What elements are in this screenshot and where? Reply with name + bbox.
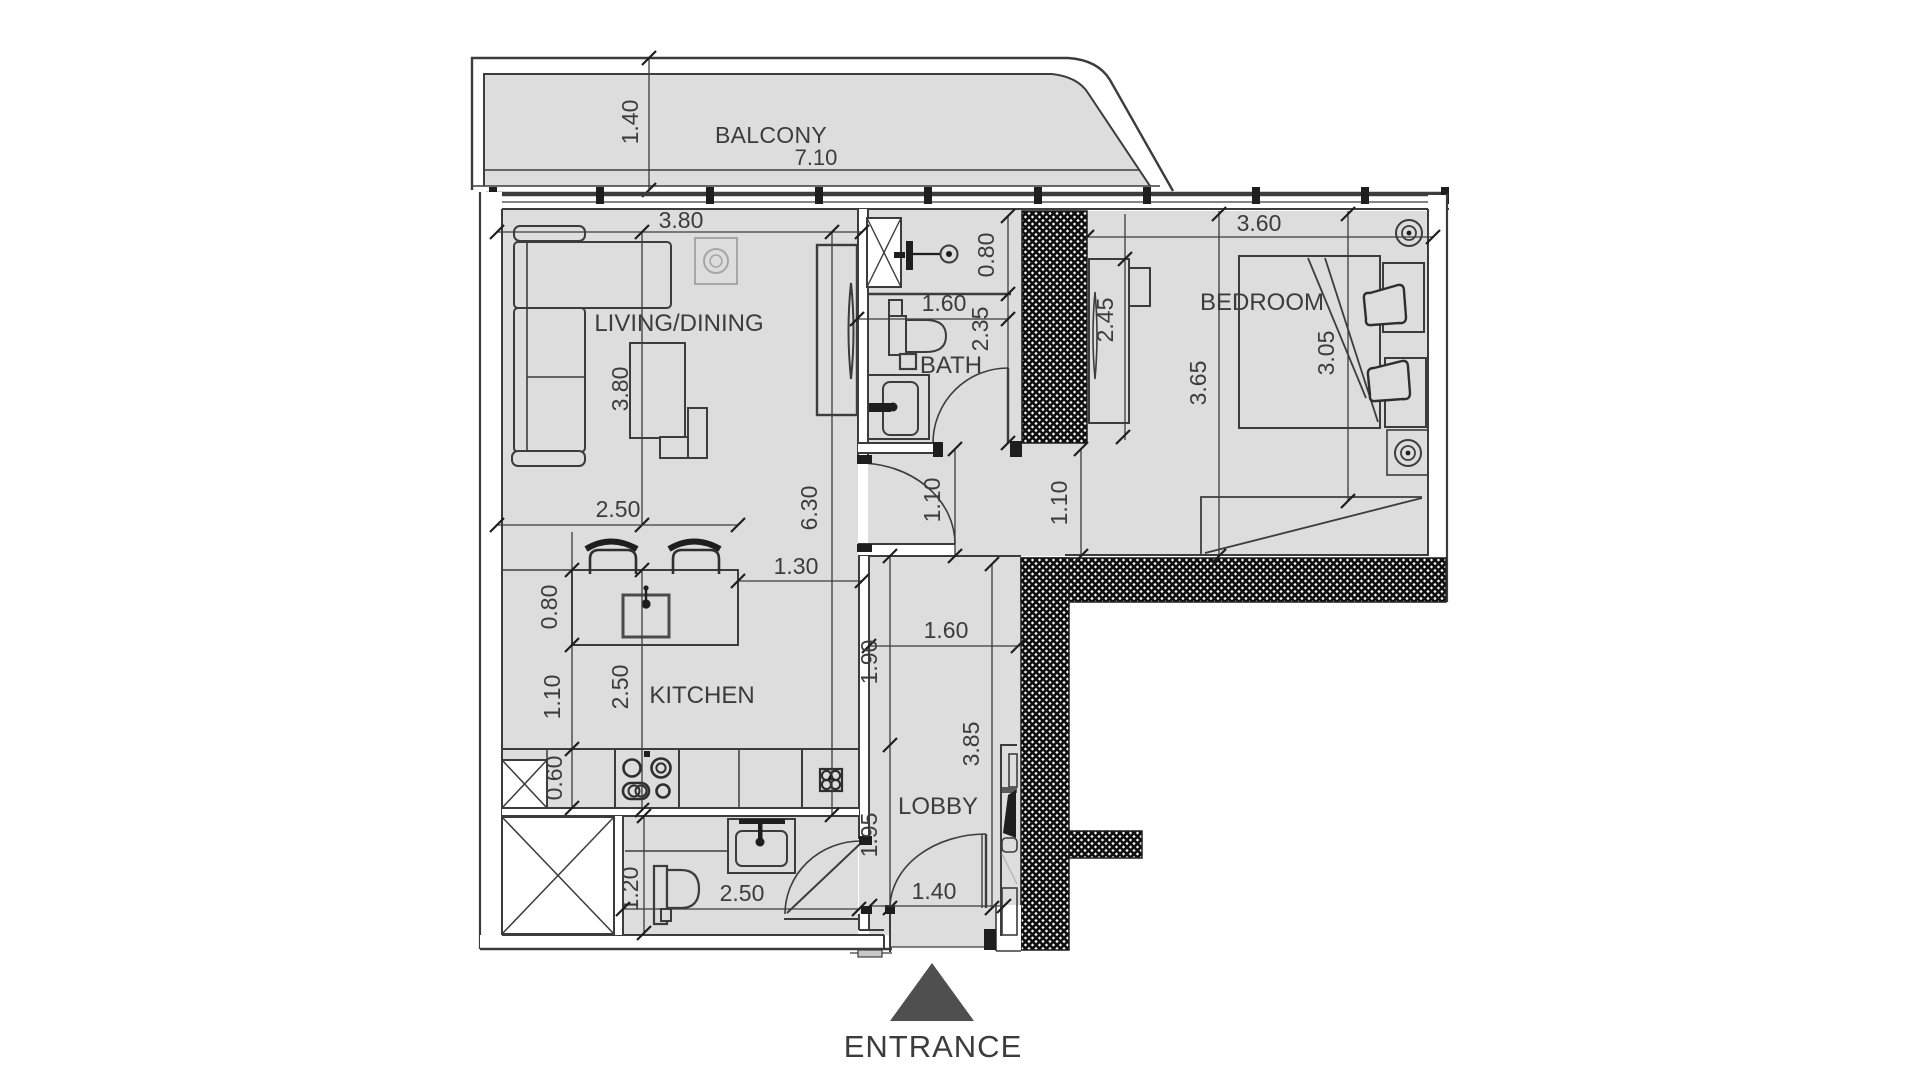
svg-text:0.80: 0.80 [973, 233, 999, 278]
svg-text:6.30: 6.30 [796, 486, 822, 531]
svg-text:1.60: 1.60 [924, 617, 969, 643]
svg-text:0.60: 0.60 [541, 756, 567, 801]
svg-text:3.85: 3.85 [958, 722, 984, 767]
svg-text:2.35: 2.35 [967, 307, 993, 352]
svg-text:1.20: 1.20 [617, 867, 643, 912]
svg-text:3.60: 3.60 [1237, 210, 1282, 236]
svg-text:KITCHEN: KITCHEN [649, 682, 754, 709]
svg-text:1.10: 1.10 [539, 675, 565, 720]
svg-text:2.50: 2.50 [607, 665, 633, 710]
svg-text:1.10: 1.10 [1046, 481, 1072, 526]
svg-text:1.60: 1.60 [922, 290, 967, 316]
svg-text:LOBBY: LOBBY [898, 793, 978, 820]
svg-text:0.80: 0.80 [536, 585, 562, 630]
svg-text:3.80: 3.80 [659, 207, 704, 233]
svg-text:LIVING/DINING: LIVING/DINING [594, 310, 763, 337]
svg-text:BATH: BATH [920, 352, 982, 379]
svg-text:3.05: 3.05 [1313, 331, 1339, 376]
svg-text:3.65: 3.65 [1185, 361, 1211, 406]
svg-text:2.45: 2.45 [1092, 298, 1118, 343]
svg-text:1.10: 1.10 [919, 478, 945, 523]
svg-text:1.30: 1.30 [774, 553, 819, 579]
svg-text:ENTRANCE: ENTRANCE [844, 1029, 1023, 1064]
svg-text:7.10: 7.10 [795, 145, 838, 170]
svg-text:2.50: 2.50 [596, 496, 641, 522]
svg-text:3.80: 3.80 [607, 367, 633, 412]
svg-text:1.90: 1.90 [856, 640, 882, 685]
svg-text:1.95: 1.95 [856, 813, 882, 858]
svg-text:2.50: 2.50 [720, 880, 765, 906]
svg-text:1.40: 1.40 [912, 878, 957, 904]
svg-text:1.40: 1.40 [617, 100, 643, 145]
